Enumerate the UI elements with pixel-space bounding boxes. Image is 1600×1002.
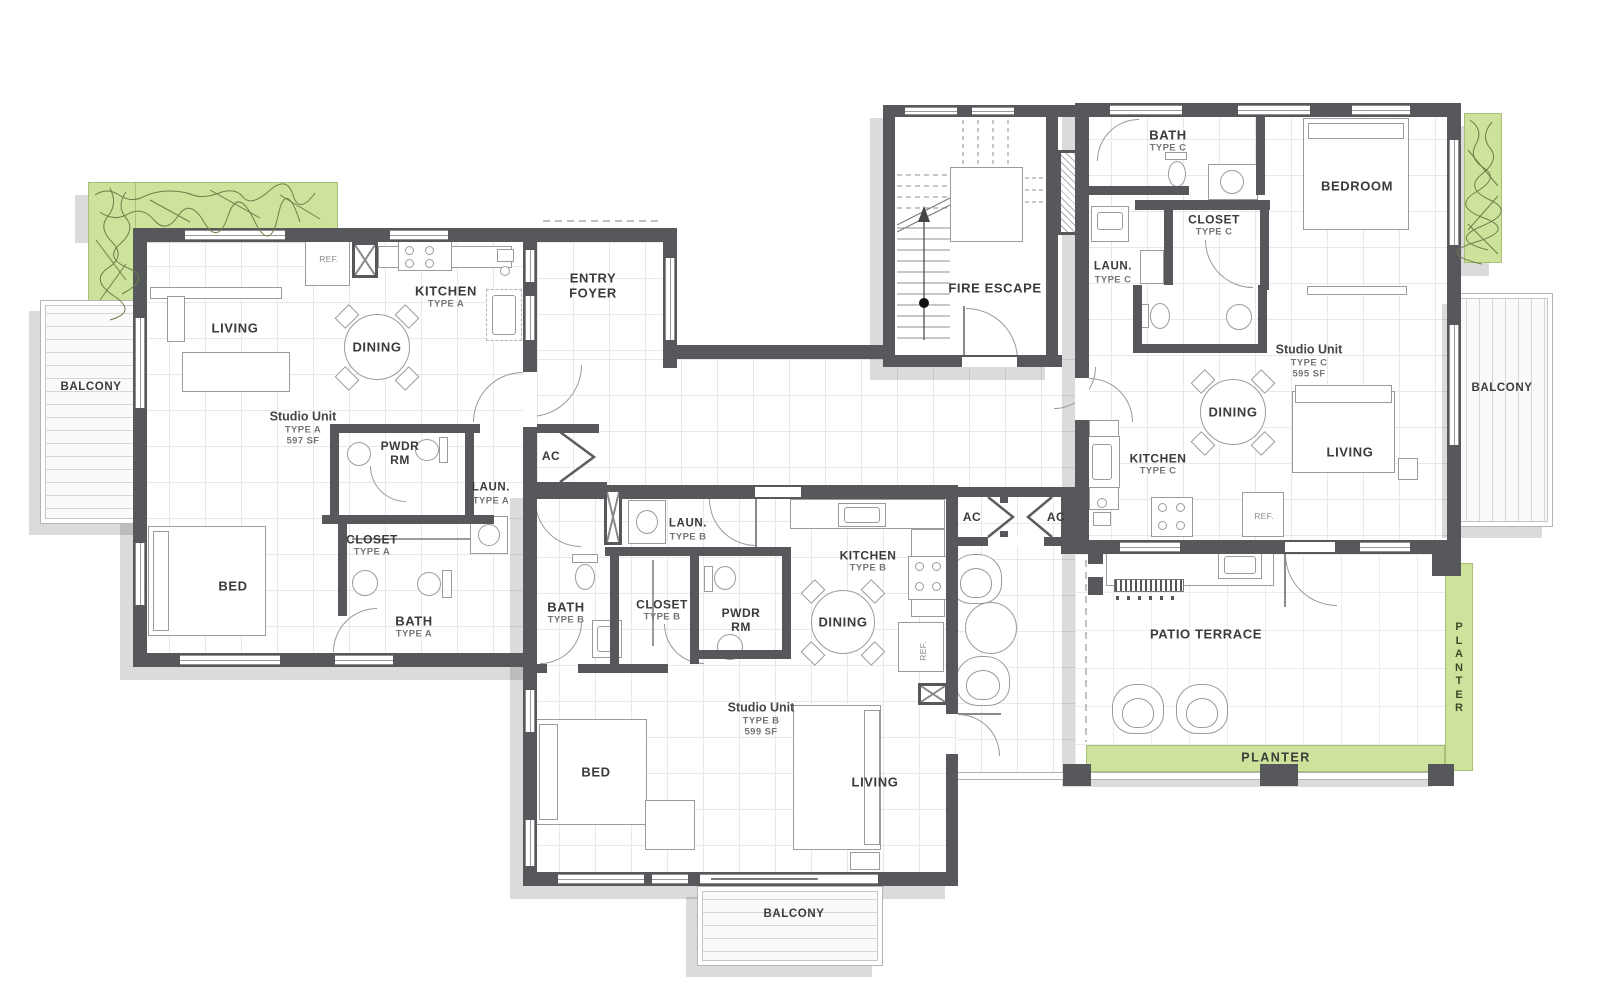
label-ac-a: AC — [542, 449, 560, 463]
room-label-bed-b: BED — [581, 764, 610, 779]
room-label-kitchen-b: KITCHENTYPE B — [840, 548, 897, 573]
room-label-closet-b-line: CLOSET — [636, 597, 688, 611]
room-label-closet-c: CLOSETTYPE C — [1188, 212, 1240, 237]
label-planter-right-line: E — [1455, 688, 1463, 702]
unit-label-studio-b-line: TYPE B — [728, 715, 795, 726]
unit-label-studio-b-line: Studio Unit — [728, 700, 795, 715]
room-label-closet-b: CLOSETTYPE B — [636, 597, 688, 622]
room-label-laun-b-line: LAUN. — [669, 518, 707, 532]
label-ref-c-line: REF. — [1254, 511, 1274, 521]
room-label-laun-b-line: TYPE B — [669, 531, 707, 542]
room-label-laun-c-line: LAUN. — [1094, 261, 1132, 275]
label-balcony-bottom: BALCONY — [763, 908, 824, 922]
room-label-bath-a-line: BATH — [395, 614, 433, 629]
label-planter-right-line: N — [1455, 661, 1463, 675]
unit-label-studio-a-line: Studio Unit — [270, 409, 337, 424]
room-label-closet-a-line: CLOSET — [346, 532, 398, 546]
room-label-dining-a: DINING — [352, 339, 401, 354]
room-label-bath-b: BATHTYPE B — [547, 600, 585, 627]
label-ref-c: REF. — [1254, 511, 1274, 521]
label-ac-mid-2-line: AC — [1047, 510, 1065, 524]
unit-label-studio-c-line: 595 SF — [1276, 368, 1343, 379]
label-planter-bottom: PLANTER — [1241, 751, 1311, 766]
label-ref-b-line: REF. — [918, 641, 928, 661]
label-balcony-right: BALCONY — [1471, 382, 1532, 396]
room-label-bedroom-c: BEDROOM — [1321, 178, 1393, 193]
label-balcony-left-line: BALCONY — [60, 381, 121, 395]
label-ac-mid-1: AC — [963, 510, 981, 524]
room-label-dining-c: DINING — [1208, 404, 1257, 419]
room-label-pwdr-b-line: PWDR — [722, 606, 761, 620]
room-label-bath-b-line: BATH — [547, 600, 585, 615]
room-label-closet-b-line: TYPE B — [636, 611, 688, 622]
room-label-pwdr-b-line: RM — [722, 620, 761, 634]
room-label-laun-a-line: TYPE A — [472, 495, 510, 506]
room-label-bath-c-line: BATH — [1149, 128, 1187, 143]
room-label-pwdr-a-line: RM — [381, 453, 420, 467]
room-label-living-c-line: LIVING — [1327, 444, 1374, 459]
room-label-laun-c-line: TYPE C — [1094, 274, 1132, 285]
room-label-bath-c: BATHTYPE C — [1149, 128, 1187, 155]
room-label-bedroom-c-line: BEDROOM — [1321, 178, 1393, 193]
room-label-kitchen-a-line: TYPE A — [415, 299, 477, 310]
room-label-fire-escape-line: FIRE ESCAPE — [948, 280, 1041, 295]
room-label-bed-b-line: BED — [581, 764, 610, 779]
room-label-bath-a-line: TYPE A — [395, 629, 433, 640]
label-planter-right-line: P — [1455, 621, 1463, 635]
room-label-closet-a-line: TYPE A — [346, 546, 398, 557]
label-planter-right-line: L — [1455, 634, 1463, 648]
room-label-kitchen-b-line: TYPE B — [840, 562, 897, 573]
label-ref-b: REF. — [918, 641, 928, 661]
room-label-pwdr-a: PWDRRM — [381, 439, 420, 467]
room-label-laun-a: LAUN.TYPE A — [472, 482, 510, 507]
room-label-dining-b: DINING — [818, 614, 867, 629]
room-label-kitchen-c: KITCHENTYPE C — [1130, 451, 1187, 476]
floor-plan: LIVINGDININGKITCHENTYPE AREF.Studio Unit… — [0, 0, 1600, 1002]
room-label-living-c: LIVING — [1327, 444, 1374, 459]
room-label-pwdr-a-line: PWDR — [381, 439, 420, 453]
unit-label-studio-c-line: TYPE C — [1276, 357, 1343, 368]
room-label-closet-a: CLOSETTYPE A — [346, 532, 398, 557]
label-ac-mid-2: AC — [1047, 510, 1065, 524]
room-label-closet-c-line: CLOSET — [1188, 212, 1240, 226]
label-ref-a-line: REF. — [319, 254, 339, 264]
label-ac-mid-1-line: AC — [963, 510, 981, 524]
room-label-laun-b: LAUN.TYPE B — [669, 518, 707, 543]
label-planter-bottom-line: PLANTER — [1241, 751, 1311, 766]
room-label-fire-escape: FIRE ESCAPE — [948, 280, 1041, 295]
room-label-kitchen-a: KITCHENTYPE A — [415, 284, 477, 311]
room-label-dining-a-line: DINING — [352, 339, 401, 354]
room-label-kitchen-a-line: KITCHEN — [415, 284, 477, 299]
room-label-entry-foyer: ENTRYFOYER — [569, 271, 617, 302]
room-label-dining-c-line: DINING — [1208, 404, 1257, 419]
unit-label-studio-a-line: 597 SF — [270, 435, 337, 446]
label-planter-right-line: A — [1455, 648, 1463, 662]
label-planter-right-line: R — [1455, 702, 1463, 716]
room-label-closet-c-line: TYPE C — [1188, 226, 1240, 237]
room-label-dining-b-line: DINING — [818, 614, 867, 629]
room-label-living-b-line: LIVING — [852, 774, 899, 789]
label-balcony-right-line: BALCONY — [1471, 382, 1532, 396]
unit-label-studio-b-line: 599 SF — [728, 726, 795, 737]
label-ac-a-line: AC — [542, 449, 560, 463]
room-label-bath-b-line: TYPE B — [547, 615, 585, 626]
label-planter-right: PLANTER — [1455, 621, 1463, 716]
room-label-laun-c: LAUN.TYPE C — [1094, 261, 1132, 286]
room-label-entry-foyer-line: ENTRY — [569, 271, 617, 286]
label-ref-a: REF. — [319, 254, 339, 264]
unit-label-studio-c: Studio UnitTYPE C595 SF — [1276, 342, 1343, 379]
room-label-kitchen-c-line: TYPE C — [1130, 465, 1187, 476]
label-planter-right-line: T — [1455, 675, 1463, 689]
room-label-living-a-line: LIVING — [212, 320, 259, 335]
room-label-laun-a-line: LAUN. — [472, 482, 510, 496]
room-label-living-a: LIVING — [212, 320, 259, 335]
unit-label-studio-b: Studio UnitTYPE B599 SF — [728, 700, 795, 737]
label-balcony-bottom-line: BALCONY — [763, 908, 824, 922]
room-label-kitchen-c-line: KITCHEN — [1130, 451, 1187, 465]
room-label-pwdr-b: PWDRRM — [722, 606, 761, 634]
unit-label-studio-a-line: TYPE A — [270, 424, 337, 435]
room-label-patio-terrace: PATIO TERRACE — [1150, 626, 1262, 641]
room-label-entry-foyer-line: FOYER — [569, 286, 617, 301]
unit-label-studio-c-line: Studio Unit — [1276, 342, 1343, 357]
room-label-patio-terrace-line: PATIO TERRACE — [1150, 626, 1262, 641]
room-label-bed-a-line: BED — [218, 578, 247, 593]
room-label-bed-a: BED — [218, 578, 247, 593]
room-label-bath-c-line: TYPE C — [1149, 143, 1187, 154]
label-balcony-left: BALCONY — [60, 381, 121, 395]
room-label-living-b: LIVING — [852, 774, 899, 789]
label-layer: LIVINGDININGKITCHENTYPE AREF.Studio Unit… — [0, 0, 1600, 1002]
room-label-bath-a: BATHTYPE A — [395, 614, 433, 641]
room-label-kitchen-b-line: KITCHEN — [840, 548, 897, 562]
unit-label-studio-a: Studio UnitTYPE A597 SF — [270, 409, 337, 446]
